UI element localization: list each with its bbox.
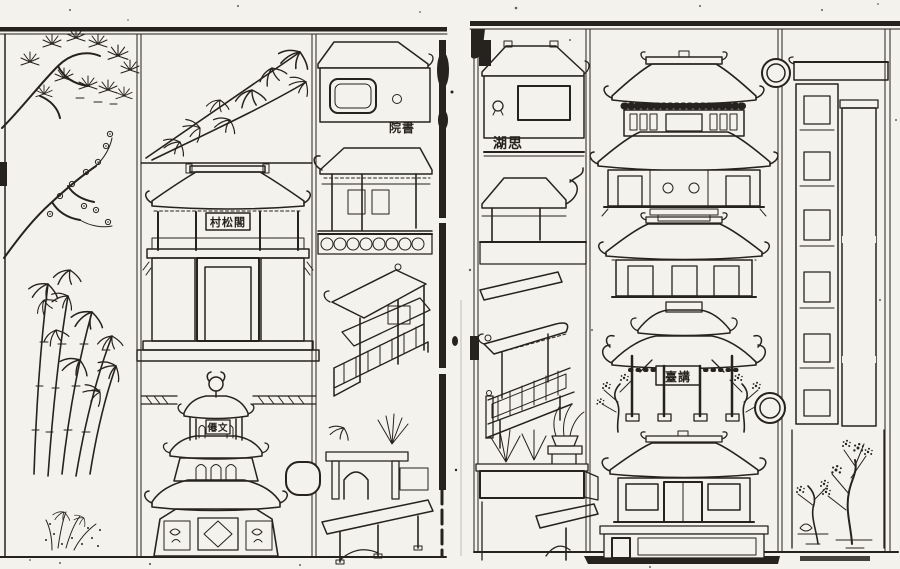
archway-plaque-text: 臺講 (665, 369, 691, 384)
pagoda-plaque-text: 僊文 (206, 422, 228, 434)
paper-background (0, 0, 900, 569)
woodblock-illustration: 村松閣 僊文 (0, 0, 900, 569)
circle-pattern-wall (318, 234, 432, 254)
hall-plaque-text: 湖思 (493, 136, 523, 152)
pavilion-plaque-text: 村松閣 (210, 215, 246, 229)
moon-gate-outline (286, 462, 320, 495)
woodblock-print-scan: 村松閣 僊文 (0, 0, 900, 569)
ring-ornament-top (762, 59, 790, 87)
ring-ornament-bottom (755, 393, 785, 423)
pavilion-doorway (197, 258, 259, 341)
